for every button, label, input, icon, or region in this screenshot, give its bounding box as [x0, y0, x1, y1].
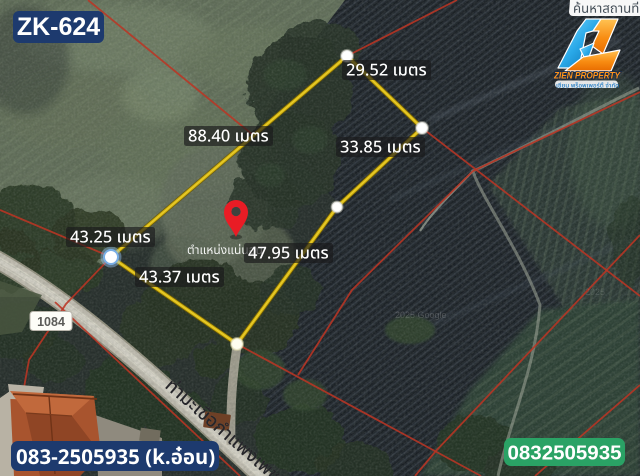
svg-text:0832505935: 0832505935: [507, 442, 621, 465]
svg-text:2025: 2025: [585, 287, 605, 297]
svg-text:ZK-624: ZK-624: [17, 13, 100, 41]
svg-text:ZIEN PROPERTY: ZIEN PROPERTY: [553, 71, 621, 82]
svg-text:2025 Google: 2025 Google: [395, 310, 447, 320]
svg-text:1084: 1084: [37, 315, 65, 329]
